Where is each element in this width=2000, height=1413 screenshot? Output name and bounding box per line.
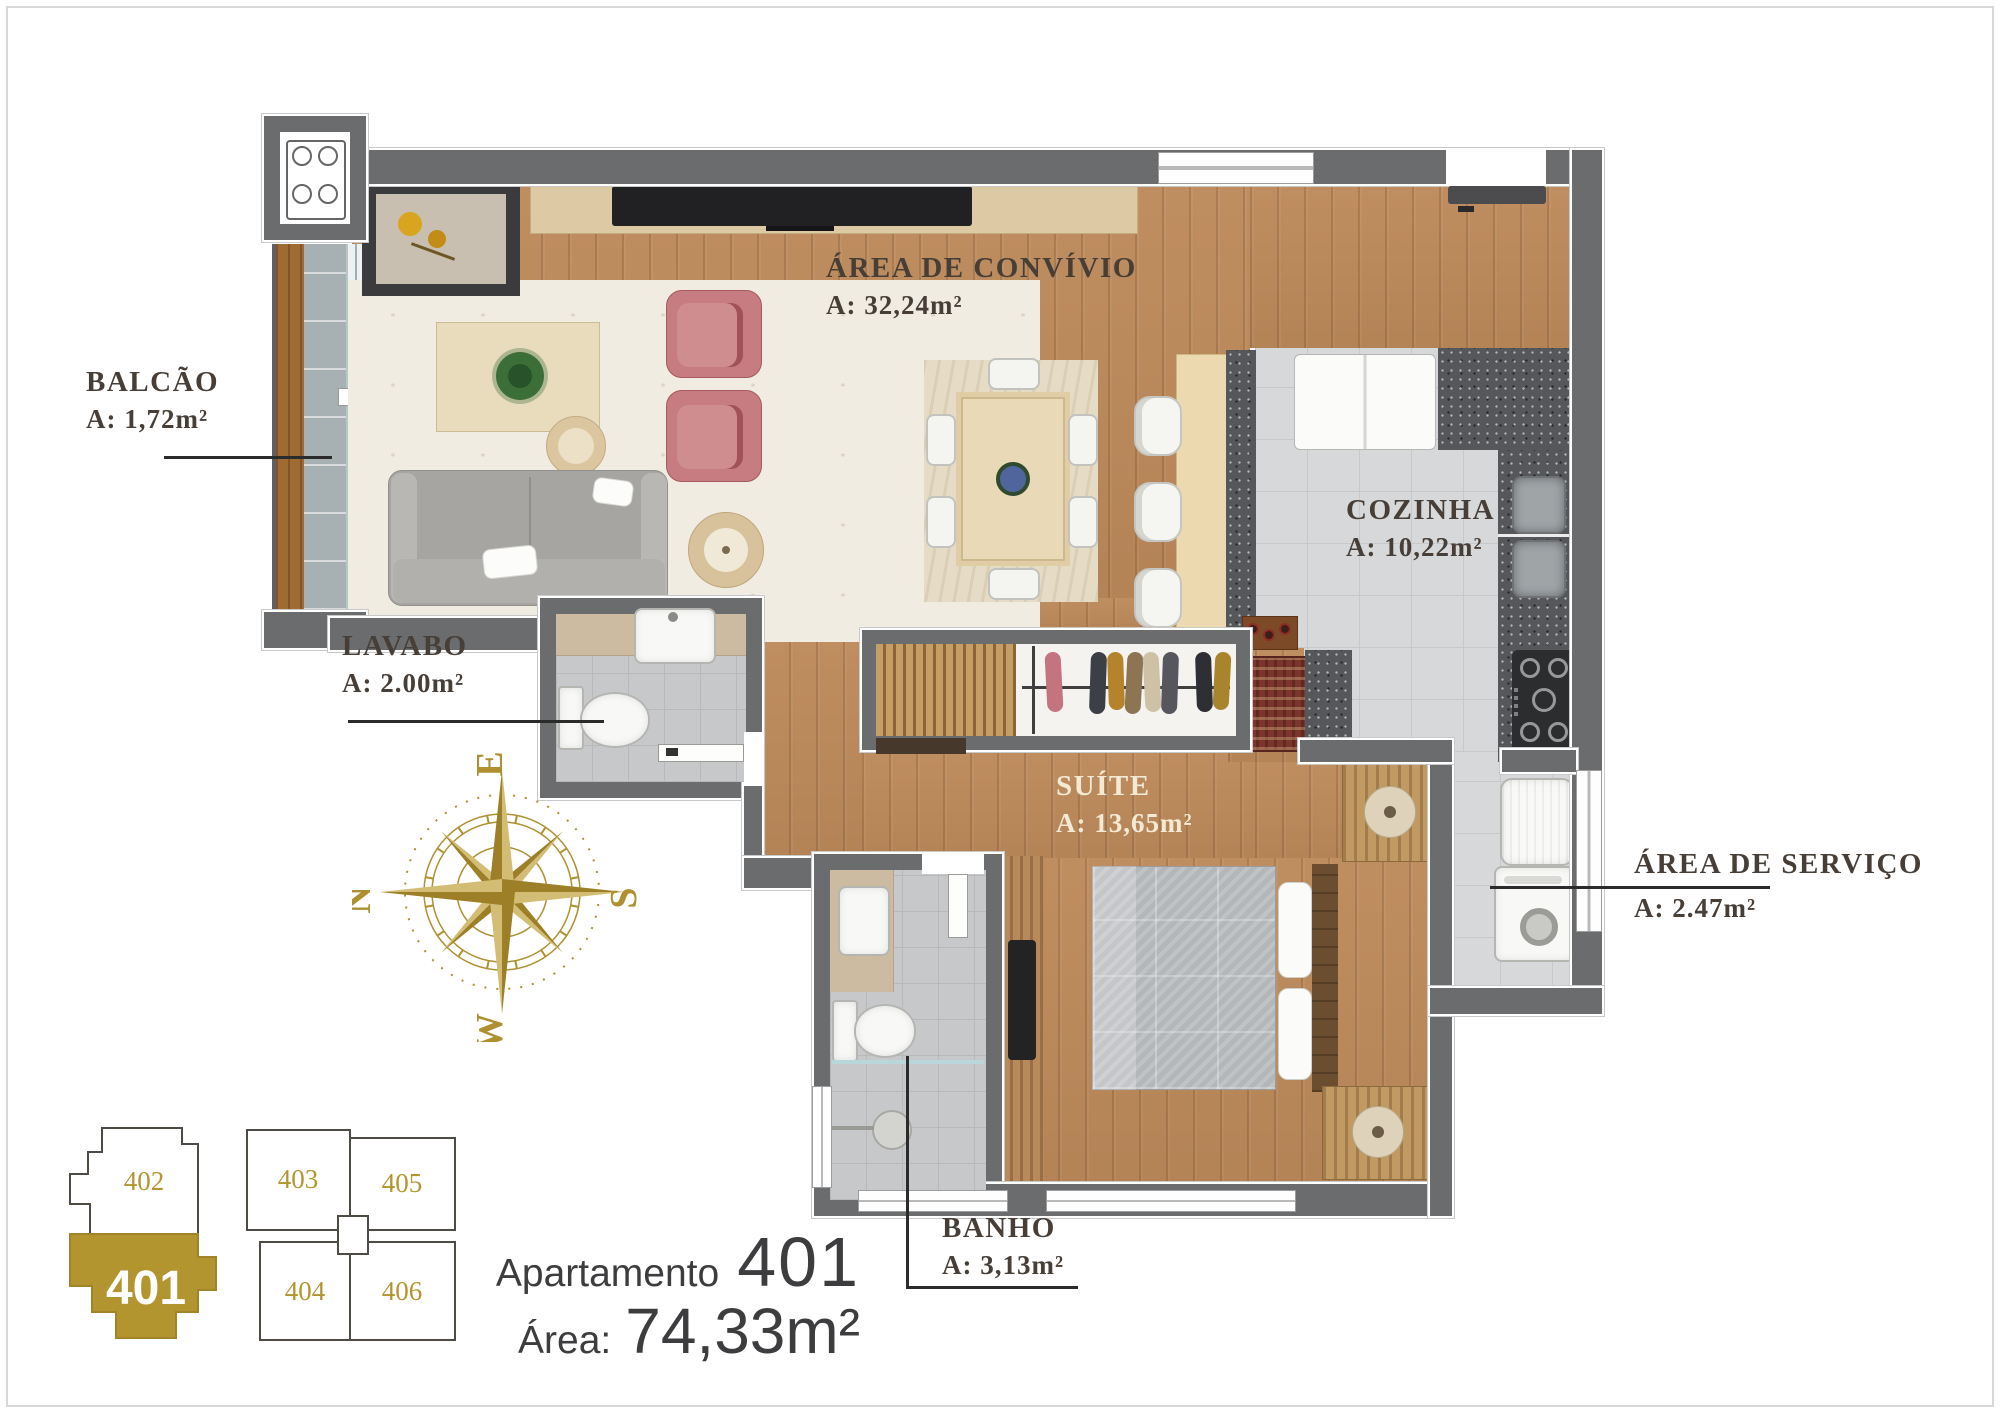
floor-corridor	[762, 634, 866, 860]
floor-entry	[1250, 184, 1576, 348]
flower-icon	[398, 212, 422, 236]
kitchen-island	[1176, 354, 1228, 650]
tv-stand	[766, 226, 834, 231]
dining-chair	[988, 358, 1040, 390]
room-label-lavabo: LAVABO A: 2.00m²	[342, 630, 468, 699]
wall-service-bottom	[1428, 986, 1604, 1016]
bottle-icon	[1263, 629, 1275, 641]
dining-chair	[1068, 496, 1098, 548]
faucet-icon	[1498, 534, 1570, 537]
leader-balcao	[164, 456, 332, 459]
room-name: SUÍTE	[1056, 770, 1193, 803]
laundry-sink	[1500, 778, 1574, 866]
banho-window	[812, 1086, 832, 1188]
armchair	[666, 390, 762, 482]
clothes-item-icon	[1161, 652, 1179, 715]
cooktop	[1512, 650, 1576, 756]
unit-403-label: 403	[278, 1164, 319, 1194]
compass-north-label: N	[352, 886, 379, 913]
room-name: BANHO	[942, 1212, 1064, 1245]
wall-top	[328, 148, 1604, 186]
title-area-label: Área:	[518, 1319, 611, 1363]
balcony-glass-floor	[304, 244, 346, 610]
service-door	[1576, 770, 1602, 932]
leader-banho-v	[906, 1056, 909, 1288]
bed-pillow	[1278, 988, 1312, 1080]
sofa-pillow	[591, 476, 634, 507]
room-name: BALCÃO	[86, 366, 219, 399]
clothes-item-icon	[1107, 652, 1125, 711]
compass-main-points	[380, 770, 624, 1014]
room-label-convivio: ÁREA DE CONVÍVIO A: 32,24m²	[826, 252, 1137, 321]
pouf-top	[558, 428, 594, 464]
unit-404-label: 404	[285, 1276, 326, 1306]
room-area: A: 1,72m²	[86, 404, 219, 435]
clothes-item-icon	[1212, 652, 1231, 711]
room-label-banho: BANHO A: 3,13m²	[942, 1212, 1064, 1281]
room-label-cozinha: COZINHA A: 10,22m²	[1346, 494, 1495, 563]
bar-stool	[1134, 568, 1182, 628]
bed-headboard	[1312, 864, 1338, 1092]
door-handle-icon	[666, 748, 678, 756]
balcony-deck	[276, 244, 304, 610]
bottle-icon	[1279, 623, 1291, 635]
knob-icon	[1514, 686, 1518, 716]
suite-window	[858, 1190, 1008, 1212]
toilet-bowl	[854, 1004, 916, 1058]
bar-stool	[1134, 396, 1182, 456]
armchair-seat	[677, 405, 743, 469]
unit-401-label: 401	[106, 1262, 186, 1315]
clothes-item-icon	[1124, 652, 1143, 715]
ring-icon	[318, 146, 338, 166]
compass-west-label: W	[469, 1013, 511, 1042]
wall-kitchen-suite	[1298, 738, 1454, 764]
kitchen-sink	[1512, 540, 1566, 598]
kitchen-sink	[1512, 476, 1566, 534]
entry-door-leaf	[1448, 186, 1546, 204]
wall-corridor-stub	[742, 856, 822, 890]
title-apartment-label: Apartamento	[496, 1252, 719, 1296]
burner-icon	[1532, 688, 1556, 712]
leader-lavabo	[348, 720, 604, 723]
lamp-center	[1372, 1126, 1384, 1138]
lamp-center	[1384, 806, 1396, 818]
plant-center	[508, 364, 532, 388]
unit-406-label: 406	[382, 1276, 423, 1306]
bed-pillow	[1278, 882, 1312, 978]
wall-kitchen-service	[1500, 748, 1578, 774]
clothes-item-icon	[1089, 652, 1107, 715]
washer-panel	[1504, 876, 1562, 884]
room-area: A: 10,22m²	[1346, 532, 1495, 563]
sofa-pillow	[482, 544, 539, 579]
room-name: LAVABO	[342, 630, 468, 663]
suite-window	[1046, 1190, 1296, 1212]
core-shape	[338, 1216, 368, 1254]
side-table-dot	[722, 546, 730, 554]
kitchen-counter-top	[1438, 348, 1578, 450]
armchair	[666, 290, 762, 378]
clothes-item-icon	[1044, 652, 1063, 713]
room-label-suite: SUÍTE A: 13,65m²	[1056, 770, 1193, 839]
compass-east-label: E	[469, 751, 511, 776]
dining-chair	[1068, 414, 1098, 466]
wall-suite-right	[1428, 738, 1454, 1218]
title-apartment-number: 401	[737, 1222, 860, 1302]
flower-icon	[428, 230, 446, 248]
washing-machine	[1494, 866, 1576, 962]
burner-icon	[1520, 658, 1540, 678]
plan-title: Apartamento 401 Área: 74,33m²	[470, 1222, 860, 1368]
dining-chair	[988, 568, 1040, 600]
room-area: A: 13,65m²	[1056, 808, 1193, 839]
burner-icon	[1520, 722, 1540, 742]
floor-plan-page: BALCÃO A: 1,72m² ÁREA DE CONVÍVIO A: 32,…	[0, 0, 2000, 1413]
lavabo-door-gap	[744, 732, 764, 786]
compass-south-label: S	[603, 887, 645, 908]
closet-rail-support	[1032, 646, 1035, 734]
ring-icon	[292, 146, 312, 166]
suite-tv-icon	[1008, 940, 1036, 1060]
island-counter	[1226, 350, 1256, 650]
door-handle-icon	[1458, 206, 1474, 212]
washer-door-icon	[1520, 908, 1558, 946]
picture-frame	[362, 182, 520, 296]
banho-door-gap	[922, 852, 984, 874]
banho-sink	[838, 886, 890, 956]
shaft-cooktop-icon	[286, 140, 346, 220]
key-plan: 402 403 405 404 406 401	[50, 1108, 480, 1358]
sofa	[388, 470, 668, 606]
burner-icon	[1548, 658, 1568, 678]
dining-chair	[926, 414, 956, 466]
shower-arm	[832, 1126, 874, 1130]
dining-chair	[926, 496, 956, 548]
burner-icon	[1548, 722, 1568, 742]
room-area: A: 3,13m²	[942, 1250, 1064, 1281]
leader-banho-h	[906, 1286, 1078, 1289]
room-label-servico: ÁREA DE SERVIÇO A: 2.47m²	[1634, 848, 1923, 924]
unit-405-label: 405	[382, 1168, 423, 1198]
room-area: A: 2.00m²	[342, 668, 468, 699]
picture-art	[376, 194, 506, 284]
room-area: A: 2.47m²	[1634, 893, 1923, 924]
armchair-seat	[677, 303, 743, 367]
banho-door-leaf	[948, 874, 968, 938]
clothes-item-icon	[1195, 652, 1213, 713]
room-name: ÁREA DE SERVIÇO	[1634, 848, 1923, 881]
centerpiece-flowers-icon	[996, 462, 1030, 496]
fridge	[1294, 354, 1436, 450]
top-wall-window	[1158, 152, 1314, 184]
bed-fold	[1092, 866, 1136, 1090]
room-area: A: 32,24m²	[826, 290, 1137, 321]
unit-402-label: 402	[124, 1166, 165, 1196]
tv-icon	[612, 186, 972, 226]
ring-icon	[292, 184, 312, 204]
clothes-item-icon	[1142, 652, 1161, 713]
entry-door-gap	[1446, 150, 1546, 184]
closet-shelves	[876, 644, 1016, 736]
room-label-balcao: BALCÃO A: 1,72m²	[86, 366, 219, 435]
room-name: ÁREA DE CONVÍVIO	[826, 252, 1137, 285]
room-name: COZINHA	[1346, 494, 1495, 527]
title-area-value: 74,33m²	[625, 1294, 860, 1368]
bar-stool	[1134, 482, 1182, 542]
faucet-icon	[668, 612, 678, 622]
closet-shelf-bar	[876, 738, 966, 754]
ring-icon	[318, 184, 338, 204]
compass-rose-icon: E S W N	[352, 742, 652, 1042]
